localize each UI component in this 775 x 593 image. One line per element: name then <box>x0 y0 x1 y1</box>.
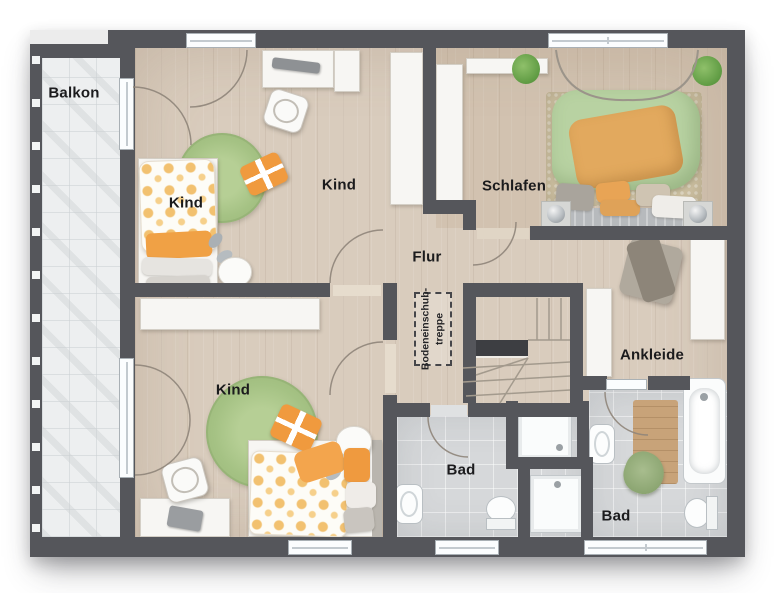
window-bar <box>439 547 495 549</box>
wall-segment <box>575 376 607 390</box>
railing-post <box>32 99 40 107</box>
room-label-kind-2: Kind <box>322 177 356 194</box>
window <box>186 33 256 48</box>
railing-post <box>32 142 40 150</box>
railing-post <box>32 400 40 408</box>
toilet-tank <box>486 518 516 530</box>
chair-ring <box>168 464 202 496</box>
wall-segment <box>463 283 583 297</box>
balcony-railing <box>30 44 42 547</box>
window <box>435 540 499 555</box>
corner-plant <box>692 56 722 86</box>
shower-drain <box>556 444 563 451</box>
wall-segment <box>727 30 745 557</box>
door-threshold <box>477 228 529 239</box>
bed-pillow <box>346 482 376 508</box>
door-threshold <box>431 405 467 416</box>
room-label-ankleide: Ankleide <box>620 347 684 364</box>
window <box>584 540 707 555</box>
shower-drain <box>554 481 561 488</box>
wall-segment <box>648 376 690 390</box>
room-label-balkon: Balkon <box>48 85 99 102</box>
window-mullion <box>607 37 609 44</box>
wardrobe <box>390 52 423 205</box>
railing-post <box>32 443 40 451</box>
wall-segment <box>383 395 397 537</box>
desk-cabinet <box>334 50 360 92</box>
bathtub-faucet <box>700 393 708 401</box>
railing-post <box>32 524 40 532</box>
door-leaf <box>606 379 647 390</box>
wall-segment <box>463 200 476 230</box>
wall-segment <box>397 403 430 417</box>
chair-ring <box>270 96 302 127</box>
wall-segment <box>570 283 583 417</box>
floor-plan: Balkon Kind Kind Schlafen Flur Kind Ankl… <box>0 0 775 593</box>
window-bar <box>126 82 128 146</box>
railing-post <box>32 357 40 365</box>
balcony-door-window <box>119 78 134 150</box>
bed-pillow <box>343 506 375 533</box>
railing-post <box>32 486 40 494</box>
attic-stairs-label: Bodeneinschub- treppe <box>419 288 446 370</box>
hanging-plant <box>512 54 540 84</box>
washbasin <box>395 484 423 524</box>
bed-pillow <box>600 200 640 216</box>
window-bar <box>126 362 128 474</box>
wall-segment <box>518 465 530 537</box>
railing-post <box>32 271 40 279</box>
window-bar <box>190 40 252 42</box>
railing-post <box>32 185 40 193</box>
wall-segment <box>463 283 476 403</box>
basin-bowl <box>400 491 418 517</box>
wall-segment <box>383 283 397 340</box>
window <box>548 33 668 48</box>
room-label-bad-2: Bad <box>602 508 631 525</box>
sphere-lamp <box>547 205 565 223</box>
room-label-kind-3: Kind <box>216 382 250 399</box>
sphere-lamp <box>689 205 707 223</box>
window <box>288 540 352 555</box>
door-threshold <box>333 285 381 296</box>
wardrobe <box>436 64 463 203</box>
wall-segment <box>530 226 727 240</box>
wall-segment <box>135 283 330 297</box>
railing-post <box>32 228 40 236</box>
window-mullion <box>645 544 647 551</box>
stair-void <box>476 340 528 358</box>
bed-pillow <box>344 448 370 482</box>
attic-stairs-label-line1: Bodeneinschub- <box>419 288 433 370</box>
balcony-door-window <box>119 358 134 478</box>
attic-stairs-label-line2: treppe <box>433 288 447 370</box>
room-label-bad-1: Bad <box>447 462 476 479</box>
railing-post <box>32 314 40 322</box>
wardrobe <box>586 288 612 377</box>
room-label-schlafen: Schlafen <box>482 178 546 195</box>
wardrobe <box>690 238 725 340</box>
room-label-kind-1: Kind <box>169 195 203 212</box>
wall-segment <box>468 403 583 417</box>
railing-post <box>32 56 40 64</box>
room-label-flur: Flur <box>412 249 441 266</box>
toilet-tank <box>706 496 718 530</box>
window-bar <box>292 547 348 549</box>
door-threshold <box>385 344 396 393</box>
basin-bowl <box>594 431 610 457</box>
balcony-floor <box>42 56 122 537</box>
wall-segment <box>581 465 593 537</box>
bed-blanket-orange <box>145 230 212 259</box>
wall-segment <box>577 401 589 469</box>
wardrobe <box>140 298 320 330</box>
wall-segment <box>423 48 436 212</box>
